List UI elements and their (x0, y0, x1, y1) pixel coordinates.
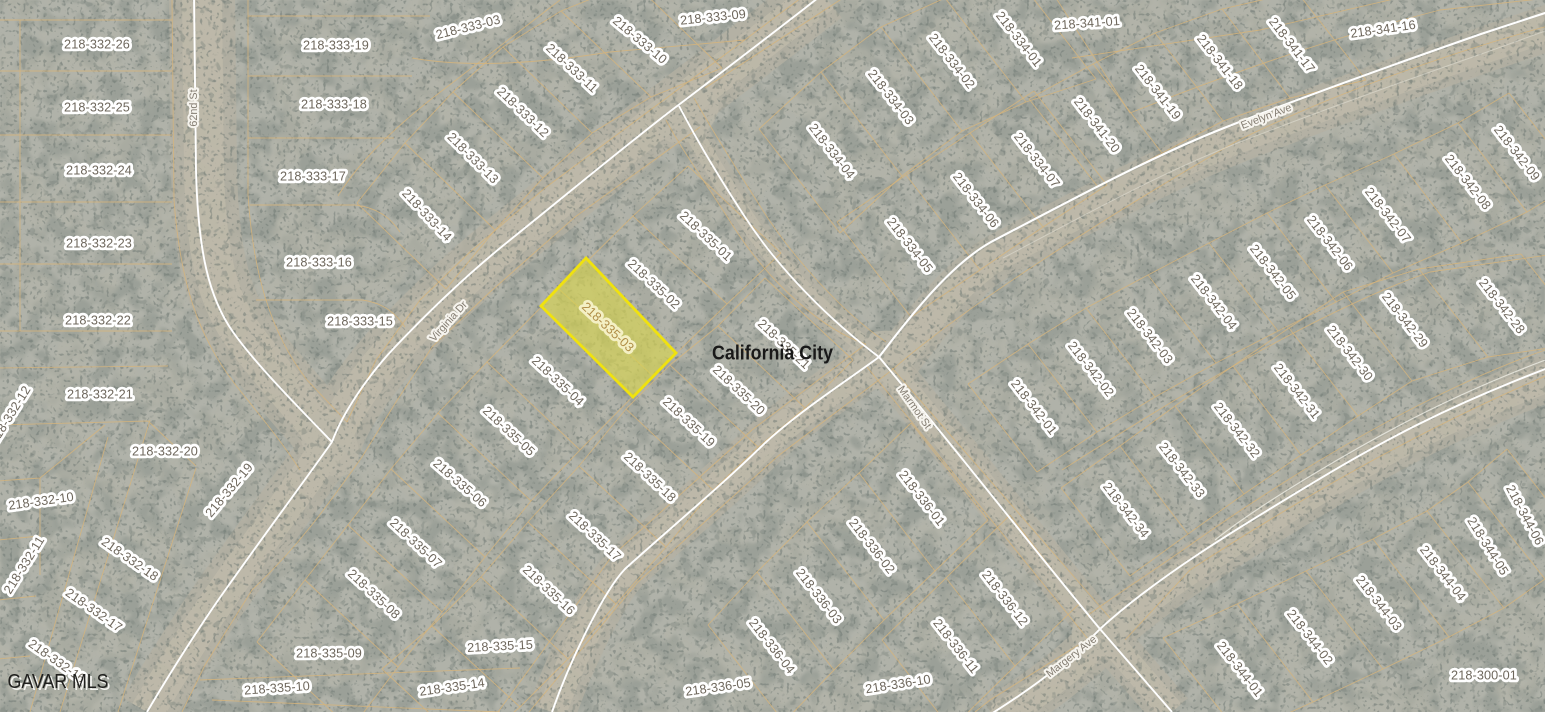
svg-text:218-333-17: 218-333-17 (280, 169, 346, 183)
svg-text:218-333-19: 218-333-19 (303, 38, 369, 52)
svg-text:218-333-18: 218-333-18 (301, 97, 367, 111)
svg-text:218-332-22: 218-332-22 (65, 313, 131, 327)
svg-text:62nd St: 62nd St (188, 89, 200, 126)
svg-text:218-332-24: 218-332-24 (66, 163, 132, 177)
svg-text:218-332-23: 218-332-23 (66, 236, 132, 250)
svg-text:218-335-09: 218-335-09 (296, 646, 362, 660)
svg-text:GAVAR MLS: GAVAR MLS (8, 670, 109, 693)
svg-text:California City: California City (712, 343, 834, 365)
svg-text:218-333-15: 218-333-15 (327, 314, 393, 328)
svg-text:218-332-21: 218-332-21 (67, 387, 133, 401)
svg-text:218-332-26: 218-332-26 (64, 37, 130, 51)
svg-text:218-300-01: 218-300-01 (1451, 668, 1517, 682)
svg-text:218-333-16: 218-333-16 (286, 255, 352, 269)
svg-text:218-332-20: 218-332-20 (132, 444, 198, 458)
svg-text:218-332-25: 218-332-25 (64, 100, 130, 114)
